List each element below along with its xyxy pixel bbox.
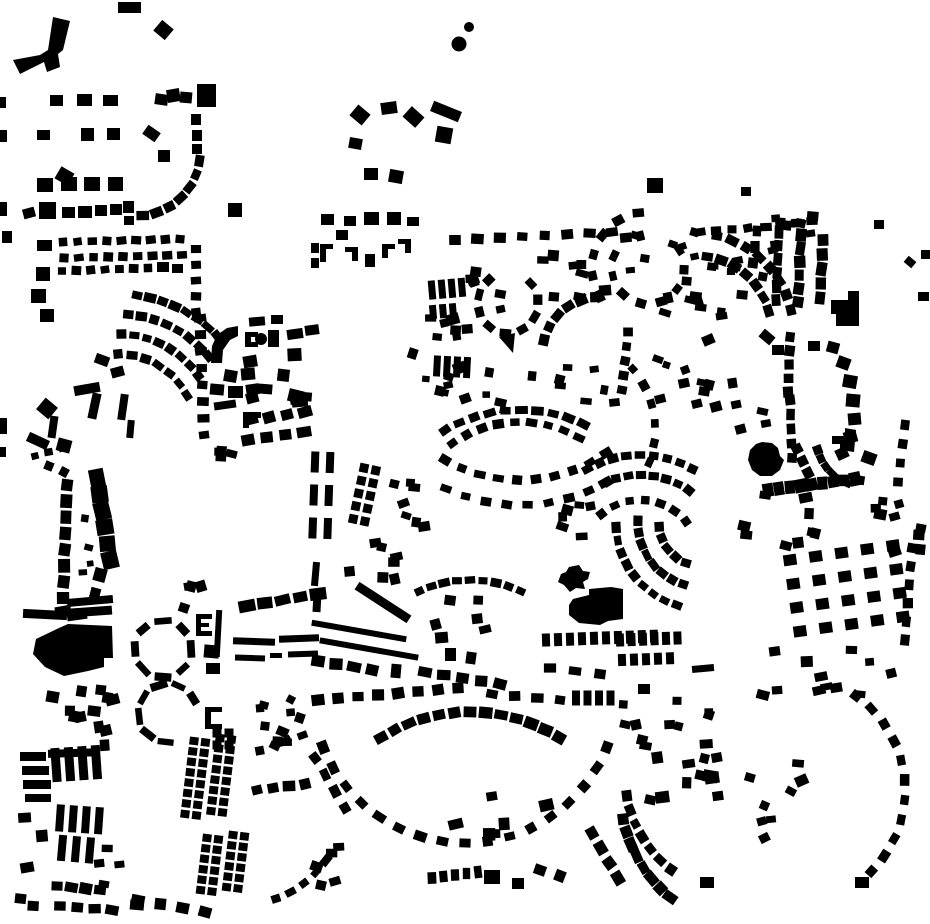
building	[640, 254, 650, 263]
building	[543, 498, 554, 508]
building	[211, 765, 221, 774]
building	[701, 252, 713, 262]
building	[20, 861, 35, 873]
building	[867, 590, 881, 603]
building	[607, 691, 615, 706]
building	[220, 787, 230, 796]
building	[298, 878, 310, 889]
building	[538, 333, 550, 346]
building	[206, 663, 220, 674]
building	[182, 331, 196, 345]
building	[110, 204, 122, 215]
building	[129, 331, 140, 339]
building	[88, 904, 100, 914]
building-complex	[320, 244, 333, 262]
building	[773, 481, 785, 496]
building	[644, 794, 657, 805]
building	[260, 431, 273, 443]
building	[915, 544, 926, 555]
building	[167, 300, 182, 313]
building	[142, 334, 153, 343]
building	[773, 253, 783, 266]
building	[666, 652, 674, 664]
building	[632, 208, 644, 217]
building	[408, 483, 420, 492]
building	[648, 472, 659, 481]
building	[36, 830, 49, 843]
building	[257, 596, 273, 609]
building	[175, 662, 190, 676]
building	[794, 256, 806, 269]
building	[102, 845, 113, 853]
building	[389, 573, 401, 586]
building	[207, 887, 217, 896]
building	[583, 228, 596, 238]
building	[387, 212, 401, 225]
building	[144, 264, 153, 273]
building	[793, 625, 807, 638]
building	[530, 474, 542, 485]
building	[641, 548, 652, 561]
building	[224, 756, 234, 765]
building	[806, 527, 820, 538]
building	[123, 201, 134, 213]
building	[181, 799, 191, 808]
building	[817, 476, 828, 490]
building	[241, 433, 256, 446]
building	[621, 452, 632, 461]
building	[893, 477, 903, 486]
building	[129, 264, 139, 273]
building	[154, 93, 168, 106]
building	[855, 877, 869, 888]
building	[321, 214, 334, 225]
building	[365, 663, 379, 676]
building	[578, 632, 586, 645]
building	[156, 296, 169, 308]
building	[522, 501, 532, 509]
building	[432, 684, 445, 696]
building	[655, 791, 670, 804]
building	[644, 842, 657, 855]
building	[422, 376, 430, 383]
building	[478, 624, 491, 634]
building	[674, 458, 686, 469]
building	[461, 324, 473, 334]
building	[662, 454, 673, 464]
building	[191, 114, 201, 125]
building-complex	[748, 442, 784, 476]
building	[512, 475, 523, 485]
building	[304, 324, 319, 336]
building	[638, 684, 650, 694]
building	[251, 784, 263, 795]
building	[463, 706, 476, 717]
building	[197, 397, 209, 406]
building	[153, 20, 173, 40]
building	[271, 315, 283, 324]
building	[225, 729, 234, 738]
building	[888, 511, 900, 521]
building	[845, 393, 860, 407]
building	[412, 686, 424, 697]
building	[178, 602, 190, 614]
building	[621, 558, 634, 572]
building	[73, 237, 82, 246]
building	[198, 865, 208, 874]
building	[100, 550, 120, 571]
building	[311, 258, 319, 268]
building	[784, 345, 796, 357]
building	[287, 348, 302, 361]
building	[635, 537, 648, 551]
building	[471, 613, 483, 624]
building	[126, 351, 138, 360]
building	[887, 734, 901, 748]
building	[175, 235, 185, 244]
building	[425, 314, 436, 321]
building-complex	[205, 707, 222, 729]
building	[309, 484, 318, 505]
building	[486, 791, 498, 801]
building	[452, 577, 462, 584]
building	[0, 130, 7, 142]
building	[216, 446, 227, 455]
building	[131, 236, 142, 245]
building	[285, 694, 296, 705]
building	[59, 237, 68, 246]
building	[190, 168, 202, 181]
building	[453, 417, 466, 428]
building	[458, 278, 467, 298]
building	[487, 829, 501, 838]
building	[615, 547, 627, 559]
building	[195, 330, 206, 339]
building	[671, 600, 684, 611]
building	[531, 406, 544, 416]
building	[188, 747, 198, 756]
building	[686, 463, 698, 475]
building	[135, 708, 143, 726]
building	[482, 320, 496, 334]
building	[874, 220, 884, 229]
building	[647, 588, 659, 599]
building	[224, 862, 234, 871]
building	[181, 389, 193, 402]
building	[78, 569, 87, 575]
building	[154, 898, 166, 910]
building	[329, 658, 343, 670]
building	[242, 355, 258, 369]
building	[429, 618, 442, 631]
building	[249, 316, 266, 326]
building	[196, 886, 206, 895]
building	[759, 491, 771, 500]
building	[212, 845, 222, 854]
building	[206, 806, 216, 815]
building	[173, 377, 185, 389]
building	[262, 410, 277, 424]
building	[87, 705, 101, 717]
building	[656, 532, 668, 544]
building	[291, 394, 308, 408]
building	[279, 634, 319, 642]
building	[548, 292, 559, 302]
building	[191, 245, 201, 253]
building	[417, 521, 430, 532]
building	[516, 323, 529, 335]
building	[447, 818, 464, 831]
building	[711, 752, 723, 763]
building	[740, 530, 753, 540]
building	[654, 522, 664, 532]
building	[280, 408, 294, 421]
building	[699, 739, 713, 749]
building	[622, 342, 632, 351]
building	[495, 305, 505, 314]
building	[756, 816, 767, 826]
building	[904, 256, 917, 269]
building	[492, 474, 504, 483]
building	[279, 429, 292, 441]
building	[51, 881, 62, 891]
building	[682, 484, 696, 498]
building	[238, 599, 257, 614]
building	[918, 292, 929, 301]
building	[135, 660, 152, 677]
building	[136, 622, 151, 637]
building	[197, 875, 207, 884]
building	[877, 849, 891, 864]
building	[608, 249, 620, 262]
building	[680, 365, 691, 376]
building	[54, 901, 66, 910]
building	[448, 279, 457, 299]
building	[649, 451, 659, 460]
building	[184, 778, 194, 787]
building	[498, 817, 510, 830]
building	[707, 262, 717, 271]
building	[258, 384, 273, 395]
building	[900, 795, 910, 806]
building	[744, 772, 756, 783]
building	[234, 874, 244, 883]
building	[152, 337, 166, 349]
building	[45, 690, 59, 703]
building	[136, 211, 149, 221]
building	[492, 419, 505, 430]
building	[865, 864, 879, 878]
building	[653, 853, 667, 867]
building	[544, 663, 556, 672]
building	[356, 475, 367, 486]
building	[848, 412, 862, 425]
building	[527, 371, 536, 381]
building	[814, 671, 828, 682]
building	[515, 406, 528, 414]
building	[446, 437, 458, 449]
building	[711, 231, 723, 241]
building	[515, 586, 526, 596]
building	[427, 872, 436, 884]
building	[391, 687, 405, 700]
building	[473, 596, 483, 605]
building	[154, 617, 172, 625]
building	[311, 654, 326, 667]
building	[817, 234, 828, 246]
building	[459, 392, 472, 404]
building	[348, 137, 363, 150]
building	[709, 400, 722, 413]
building	[826, 341, 840, 355]
building	[445, 648, 456, 661]
building	[436, 836, 449, 847]
building	[207, 796, 217, 805]
building	[801, 466, 815, 480]
building	[460, 428, 473, 441]
building	[389, 479, 400, 489]
building	[636, 734, 649, 746]
building	[64, 881, 78, 893]
building	[103, 252, 113, 262]
building	[213, 835, 223, 844]
building	[812, 574, 826, 587]
building	[195, 780, 205, 789]
building	[238, 842, 248, 851]
building	[349, 104, 370, 125]
building	[270, 894, 281, 904]
building	[601, 855, 617, 871]
building	[225, 851, 235, 860]
building	[517, 232, 528, 241]
building	[860, 543, 874, 556]
building	[39, 202, 56, 219]
building	[619, 719, 631, 729]
building	[124, 216, 134, 225]
building	[484, 870, 500, 884]
building	[433, 355, 441, 376]
building	[344, 566, 355, 577]
building	[793, 282, 805, 296]
building	[445, 312, 460, 326]
building	[37, 240, 52, 251]
building	[364, 168, 378, 180]
building	[213, 741, 222, 750]
building	[830, 682, 843, 693]
building	[819, 621, 833, 634]
building	[89, 253, 98, 261]
building	[892, 587, 906, 600]
building	[503, 581, 515, 592]
building	[758, 832, 771, 844]
building	[618, 654, 626, 666]
building	[380, 101, 398, 115]
building	[525, 418, 538, 428]
building	[846, 646, 858, 654]
building	[355, 582, 412, 623]
building	[0, 202, 7, 216]
building	[437, 670, 451, 681]
building	[40, 309, 54, 322]
building	[102, 236, 112, 245]
building	[473, 865, 482, 878]
building	[512, 878, 524, 889]
building	[172, 264, 183, 273]
building	[679, 265, 688, 275]
building	[131, 290, 143, 300]
building	[414, 586, 425, 597]
building	[585, 501, 596, 511]
building	[753, 226, 762, 237]
building	[449, 235, 461, 245]
building-complex	[382, 244, 395, 258]
building	[149, 206, 164, 220]
building	[323, 518, 332, 539]
building	[444, 595, 456, 606]
building	[450, 325, 461, 335]
building-round	[464, 22, 474, 32]
building	[87, 560, 94, 567]
building	[133, 252, 143, 260]
building	[680, 515, 692, 527]
building	[838, 570, 852, 583]
building	[575, 268, 589, 278]
building	[654, 394, 666, 405]
building	[730, 400, 741, 410]
building	[447, 706, 461, 719]
building	[351, 501, 362, 512]
building	[878, 497, 888, 506]
building	[177, 251, 187, 259]
building	[359, 463, 370, 474]
building	[392, 822, 406, 835]
building	[459, 838, 470, 847]
building	[348, 514, 359, 525]
building	[103, 95, 118, 106]
building	[209, 786, 219, 795]
building	[555, 521, 569, 533]
building	[792, 537, 804, 549]
building	[682, 759, 696, 769]
building	[700, 877, 714, 888]
building	[352, 692, 363, 701]
building	[235, 654, 265, 661]
building	[501, 499, 513, 509]
building	[798, 492, 813, 504]
building	[44, 448, 54, 457]
building	[311, 243, 319, 253]
building	[814, 291, 825, 305]
building	[771, 294, 780, 306]
building	[531, 693, 544, 703]
building	[548, 471, 560, 482]
building	[550, 308, 565, 323]
building	[789, 601, 803, 614]
building	[210, 866, 220, 875]
building	[186, 691, 200, 707]
building	[554, 695, 565, 705]
building	[199, 748, 209, 757]
building	[757, 291, 770, 305]
building	[452, 682, 464, 693]
building	[860, 450, 877, 466]
building	[484, 367, 494, 378]
building	[58, 559, 70, 573]
building	[494, 709, 509, 720]
building	[87, 392, 101, 419]
building	[73, 253, 84, 262]
building	[664, 862, 678, 876]
